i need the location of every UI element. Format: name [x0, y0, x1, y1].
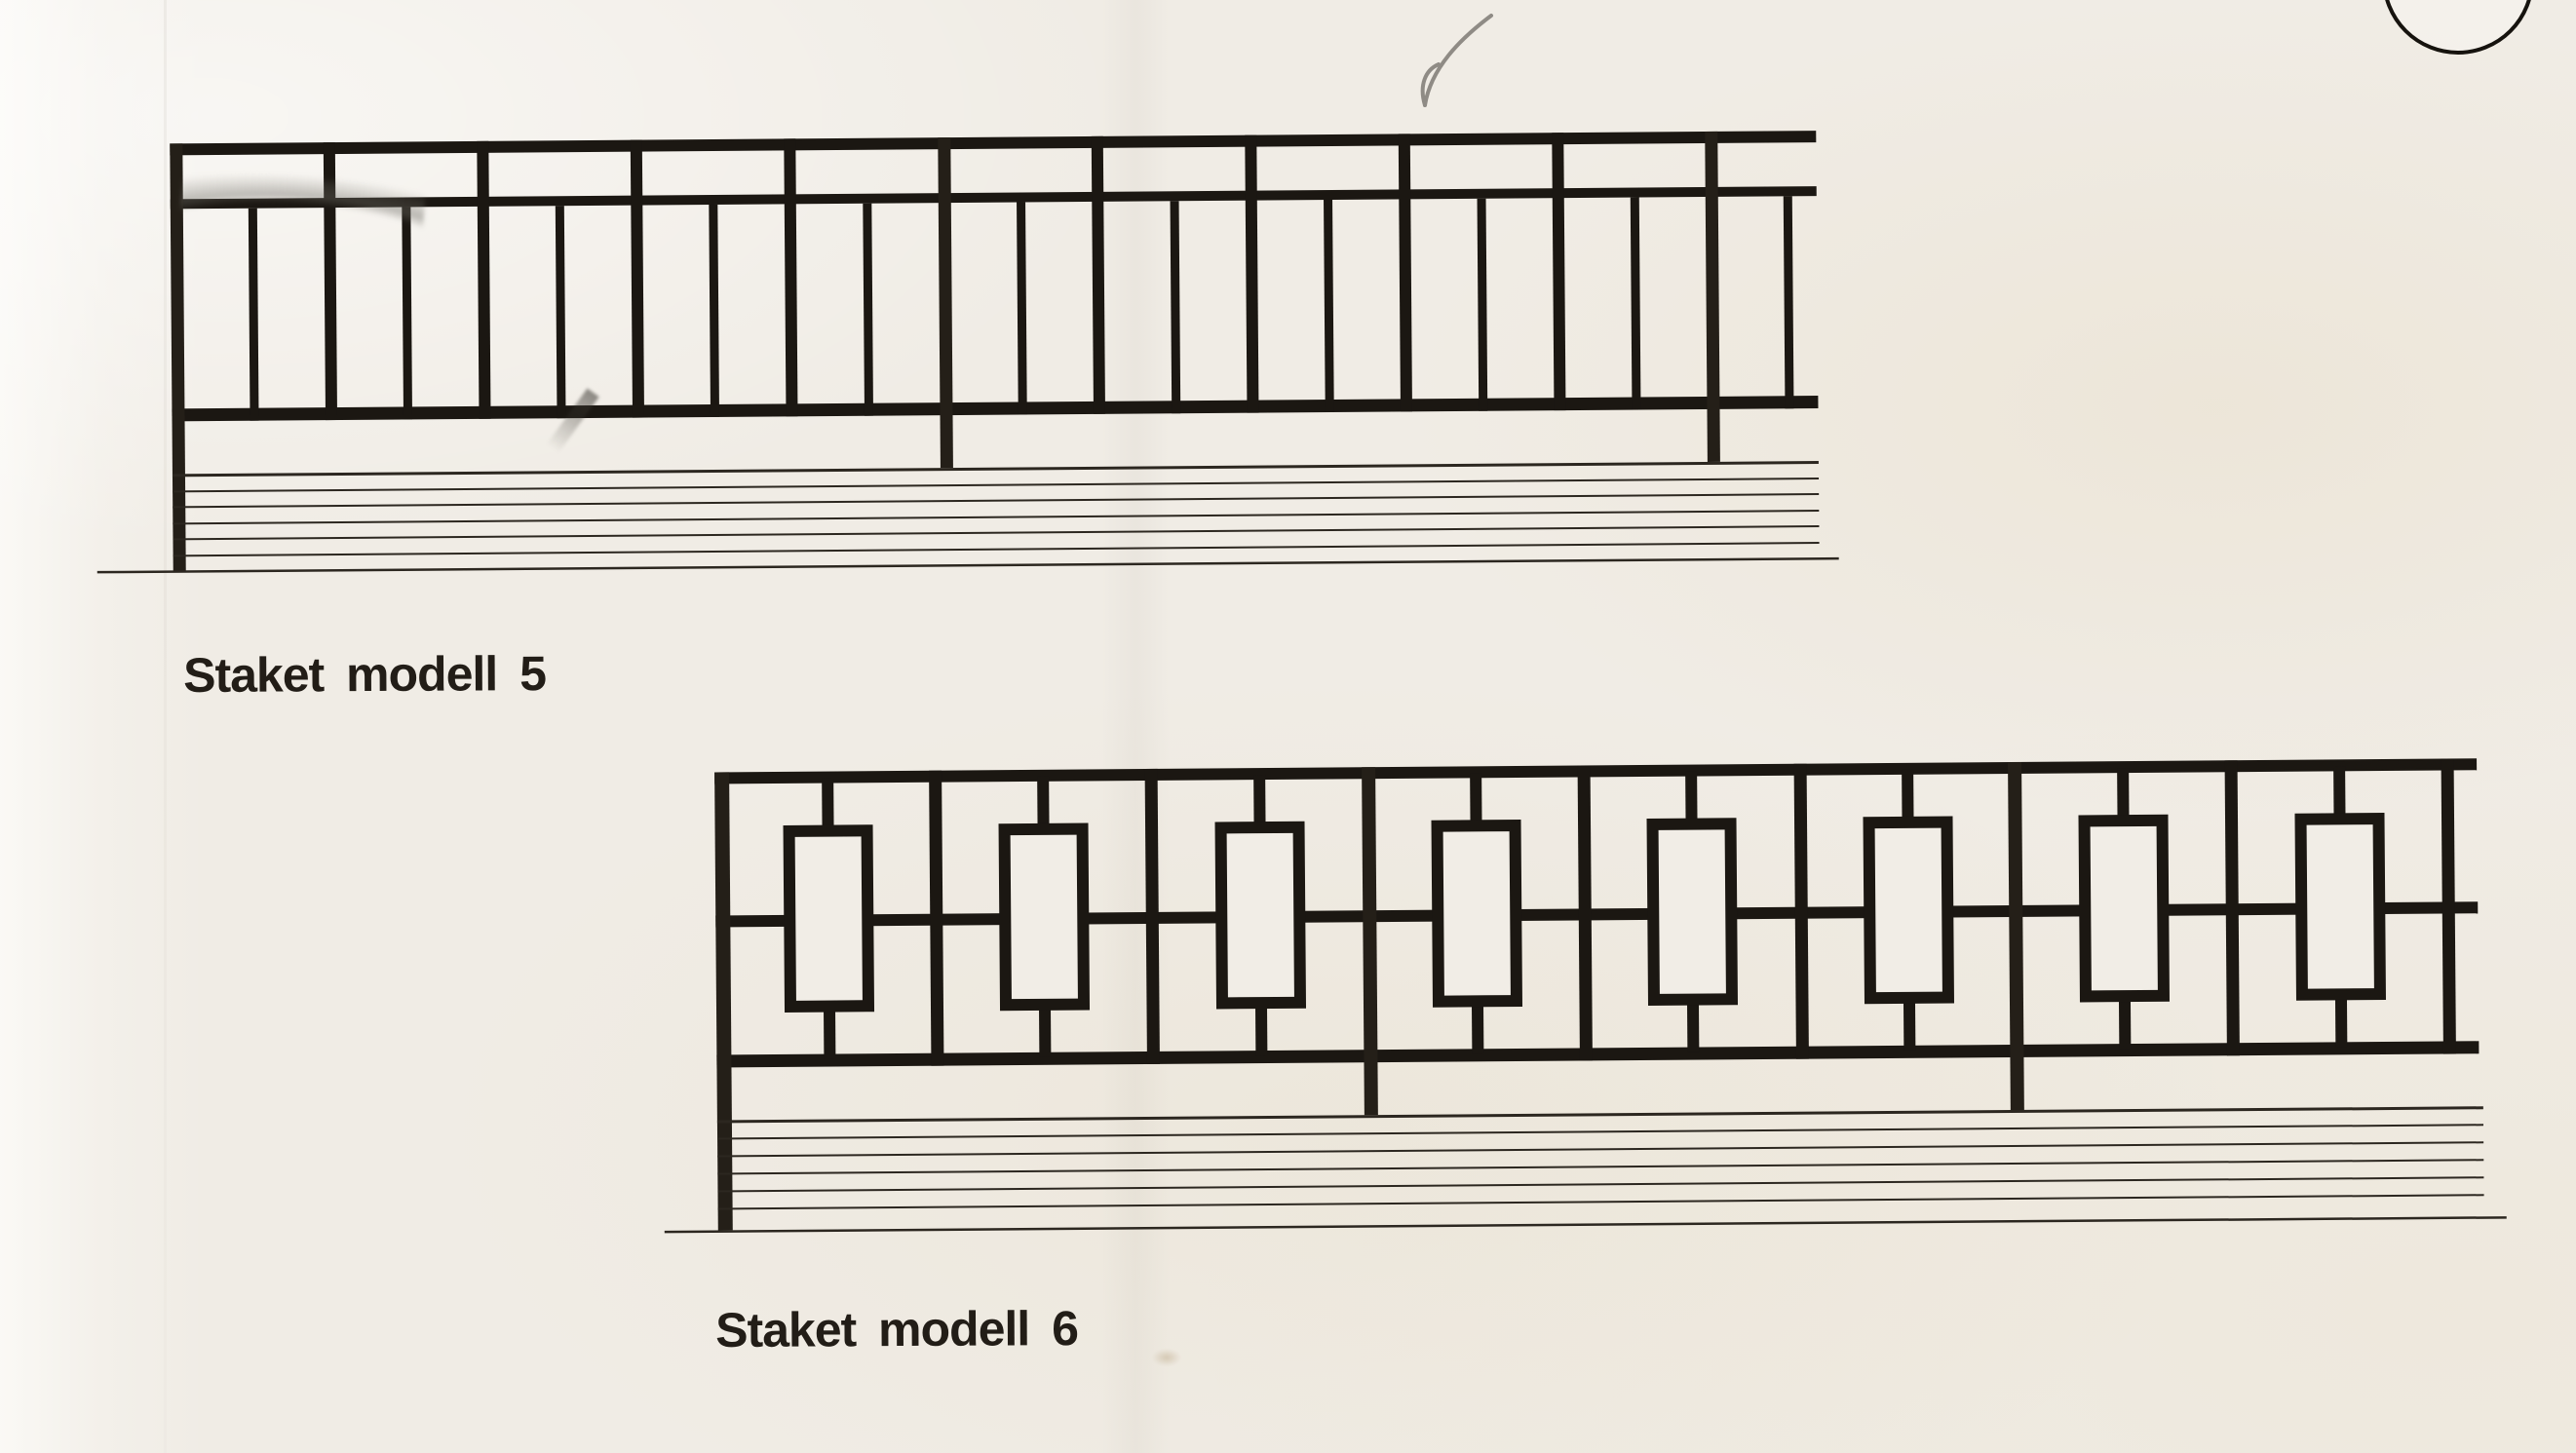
short-baluster	[863, 204, 873, 416]
panel-rectangle	[1438, 825, 1517, 1002]
short-baluster	[1631, 197, 1641, 409]
ground-line	[173, 461, 1819, 477]
mid-post	[938, 137, 953, 468]
ground-line	[173, 542, 1820, 556]
tall-baluster	[1552, 133, 1565, 410]
short-baluster	[556, 206, 566, 418]
ground-line	[718, 1194, 2484, 1209]
pencil-checkmark	[1402, 8, 1528, 125]
middle-rail	[715, 901, 2478, 927]
ground-line	[717, 1159, 2483, 1174]
pencil-smudge-arc	[178, 139, 428, 253]
tall-baluster	[1245, 135, 1258, 413]
paper-stain-dab	[1152, 1349, 1181, 1366]
ground-line	[717, 1106, 2483, 1123]
upright	[1578, 765, 1593, 1060]
upright	[2225, 760, 2240, 1055]
panel-rectangle	[2301, 819, 2380, 995]
bottom-rail	[172, 396, 1818, 421]
caption-staket-modell-6: Staket modell 6	[715, 1304, 1078, 1355]
top-rail	[714, 758, 2477, 784]
ground-line-base	[97, 557, 1839, 574]
short-baluster	[709, 205, 719, 417]
panel-rectangle	[1005, 829, 1084, 1006]
corner-circle-mark	[2382, 0, 2534, 55]
panel-rectangle	[2085, 821, 2164, 997]
short-baluster	[1784, 196, 1794, 408]
ground-line	[173, 493, 1819, 508]
upright	[929, 771, 943, 1066]
ground-line	[173, 525, 1819, 540]
tall-baluster	[784, 138, 797, 416]
upright	[1145, 769, 1160, 1064]
upright	[2441, 758, 2456, 1053]
ground-line	[717, 1141, 2483, 1157]
ground-line	[173, 478, 1819, 492]
scanned-catalog-page: Staket modell 5	[0, 0, 2576, 1453]
bottom-rail	[716, 1041, 2479, 1067]
fence-drawing-modell-6	[651, 746, 2556, 1257]
tall-baluster	[1092, 136, 1105, 414]
caption-staket-modell-5: Staket modell 5	[183, 649, 546, 700]
short-baluster	[1017, 202, 1027, 414]
short-baluster	[1478, 199, 1488, 411]
top-rail	[170, 131, 1816, 155]
tall-baluster	[631, 140, 644, 418]
tall-baluster	[1399, 134, 1412, 411]
ground-line-base	[665, 1216, 2507, 1233]
upright	[1794, 764, 1809, 1059]
panel-rectangle	[1653, 823, 1732, 1000]
end-post-left	[714, 772, 733, 1230]
ground-line	[173, 510, 1819, 524]
panel-rectangle	[1869, 822, 1948, 999]
figure-staket-modell-6	[653, 760, 2554, 1257]
panel-rectangle	[1221, 827, 1300, 1004]
short-baluster	[1171, 201, 1181, 413]
tall-baluster	[477, 141, 490, 419]
short-baluster	[1324, 200, 1334, 412]
mid-post	[1362, 767, 1378, 1115]
mid-post	[1705, 132, 1720, 462]
ground-line	[717, 1176, 2483, 1192]
mid-post	[2008, 762, 2024, 1110]
ground-line	[717, 1124, 2483, 1139]
panel-rectangle	[789, 830, 868, 1007]
